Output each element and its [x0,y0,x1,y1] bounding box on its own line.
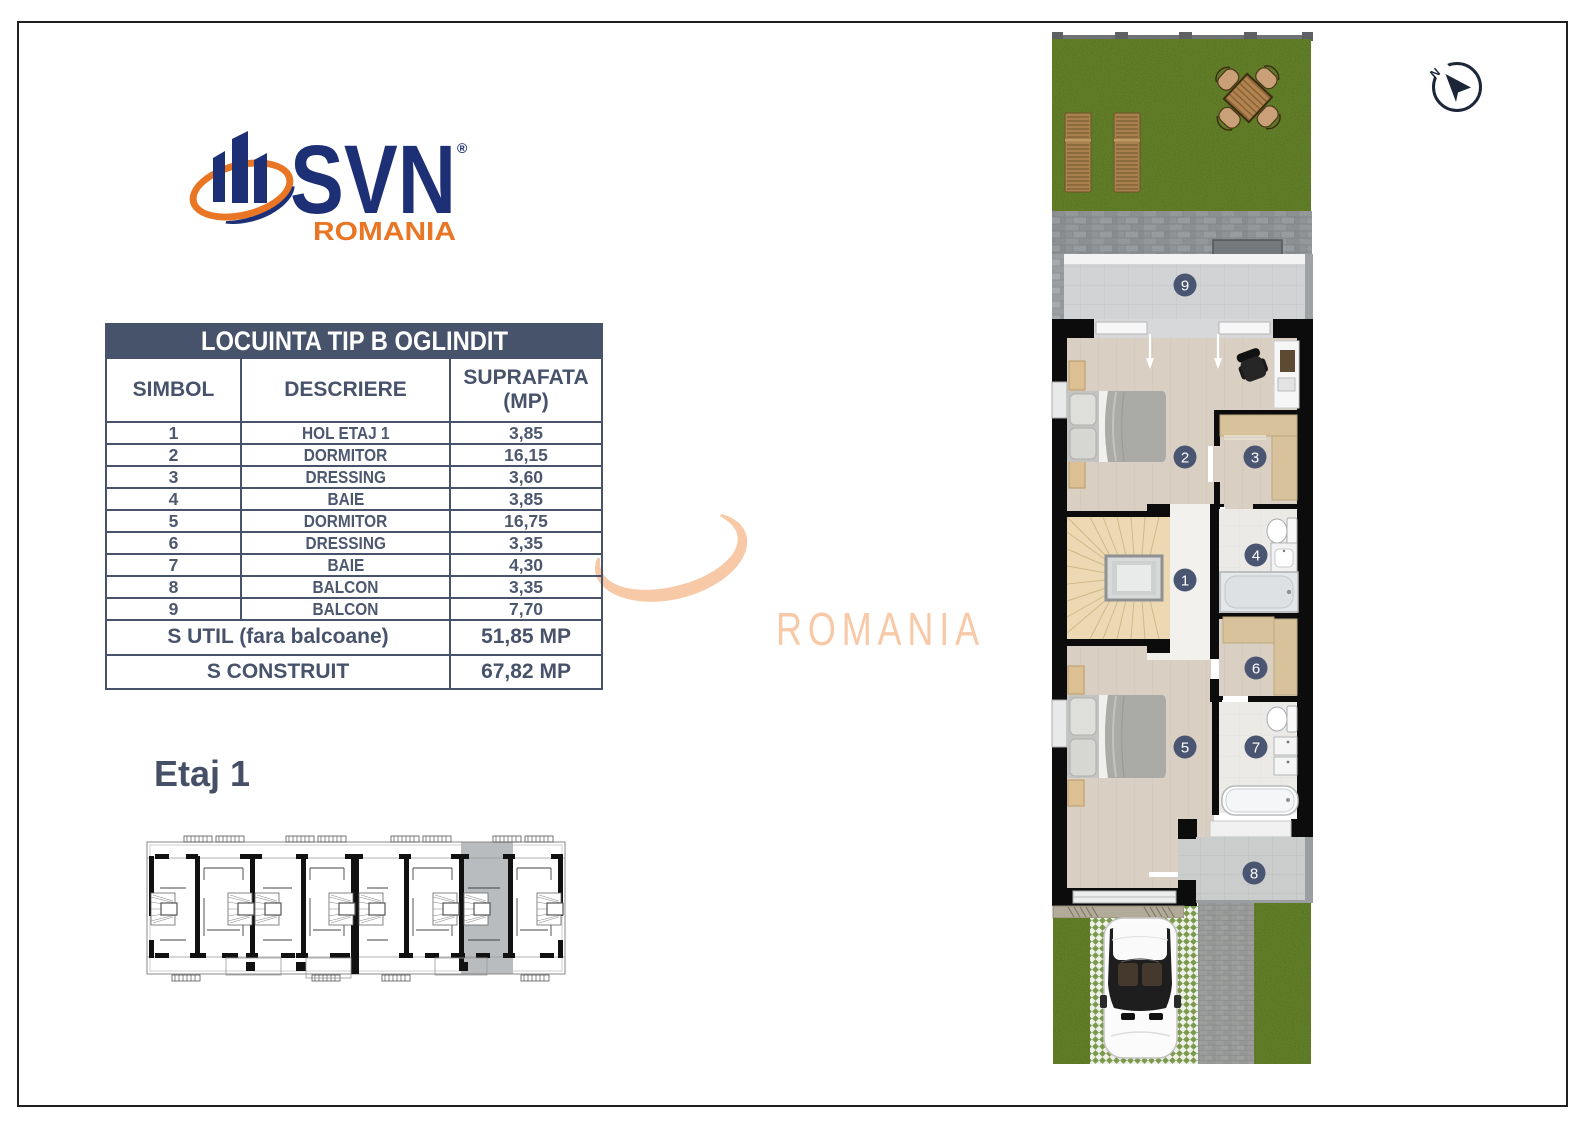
svg-text:2: 2 [1181,450,1189,467]
svg-text:ROMANIA: ROMANIA [776,603,985,655]
svg-text:9: 9 [1181,278,1189,295]
svg-text:8: 8 [1250,866,1258,883]
svg-text:4: 4 [1252,548,1260,565]
svg-text:5: 5 [1181,740,1189,757]
svg-text:ROMANIA: ROMANIA [313,216,456,246]
svg-text:1: 1 [1181,573,1189,590]
svg-text:3: 3 [1251,450,1259,467]
svg-text:6: 6 [1252,661,1260,678]
svg-text:7: 7 [1252,740,1260,757]
svg-text:®: ® [457,140,468,156]
